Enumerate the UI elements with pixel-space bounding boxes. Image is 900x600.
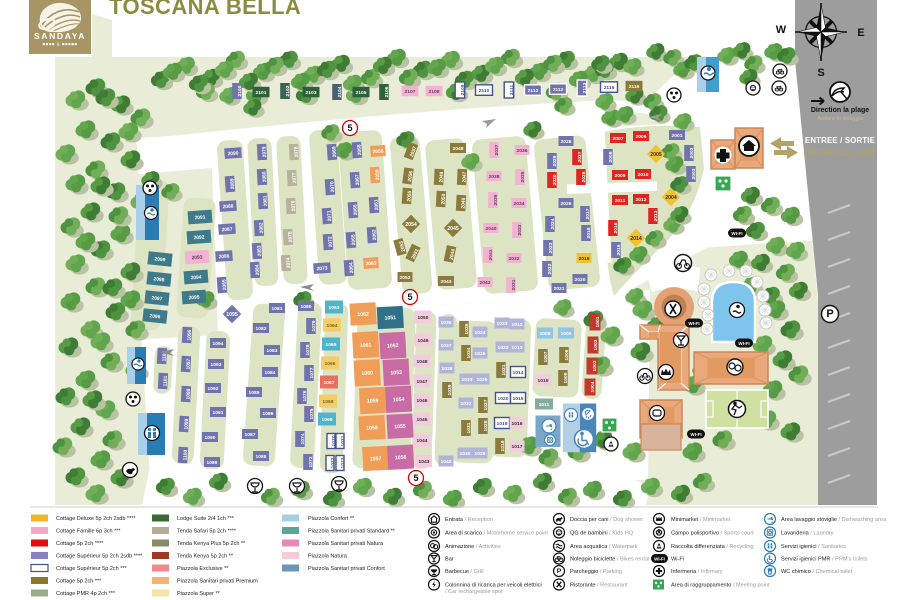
svg-text:2071: 2071 [326,210,333,222]
svg-text:2061: 2061 [373,199,380,211]
svg-text:P: P [826,308,833,320]
svg-text:2102: 2102 [285,85,291,96]
svg-text:Andare in spiaggia: Andare in spiaggia [817,116,864,122]
svg-text:1004: 1004 [590,381,596,392]
svg-text:1011: 1011 [539,402,550,408]
svg-text:Direction la plage: Direction la plage [811,107,869,114]
svg-text:1090: 1090 [205,435,216,441]
svg-text:Cottage Famille 6p 3ch ***: Cottage Famille 6p 3ch *** [56,529,121,535]
svg-text:WI-FI: WI-FI [731,231,742,236]
svg-text:1062: 1062 [357,312,369,319]
svg-text:2096: 2096 [149,313,161,320]
svg-text:Noleggio biciclette / Bikes re: Noleggio biciclette / Bikes rental [570,557,649,563]
svg-text:WI-FI: WI-FI [654,557,665,562]
svg-text:P: P [557,568,562,575]
svg-text:1024: 1024 [475,330,486,336]
svg-text:1017: 1017 [512,444,523,450]
svg-text:Doccia per cani / Dog shower: Doccia per cani / Dog shower [570,517,643,523]
svg-text:Servizi igienici / Sanitaries: Servizi igienici / Sanitaries [781,544,846,550]
svg-text:2108: 2108 [429,89,440,95]
svg-text:ENTRANCE / EXIT: ENTRANCE / EXIT [805,148,875,157]
svg-text:Infermeria / Infirmary: Infermeria / Infirmary [671,569,723,575]
svg-text:/ Car rechargeable spot: / Car rechargeable spot [445,589,503,595]
svg-text:1026: 1026 [477,377,488,383]
svg-text:2039: 2039 [493,194,499,205]
svg-text:1048: 1048 [417,359,428,365]
svg-text:2105: 2105 [356,90,367,96]
svg-text:5: 5 [407,292,412,302]
svg-text:1064: 1064 [327,323,338,329]
svg-text:Lodge Suite 2/4 1ch ***: Lodge Suite 2/4 1ch *** [177,516,235,522]
svg-text:Area lavaggio stoviglie / Dish: Area lavaggio stoviglie / Dishwashing ar… [781,517,887,523]
svg-text:2112: 2112 [553,87,564,93]
svg-text:■■■■ & ■■■■■: ■■■■ & ■■■■■ [42,42,77,47]
svg-text:WI-FI: WI-FI [738,341,749,346]
svg-text:2023: 2023 [548,242,554,253]
svg-text:Ristorante / Restaurant: Ristorante / Restaurant [570,583,628,589]
svg-text:2058: 2058 [372,149,384,156]
svg-text:2079: 2079 [262,146,269,157]
svg-text:2034: 2034 [514,201,525,207]
svg-text:Piazzola Exclusive **: Piazzola Exclusive ** [177,566,229,572]
svg-text:1007: 1007 [543,351,549,362]
svg-text:2019: 2019 [579,256,590,262]
svg-text:2107: 2107 [405,89,416,95]
svg-text:1008: 1008 [540,331,551,337]
svg-text:2052: 2052 [400,275,411,281]
svg-text:1086: 1086 [263,411,274,417]
svg-text:2002: 2002 [689,147,695,158]
svg-text:1018: 1018 [500,440,506,451]
svg-text:2086: 2086 [218,254,230,261]
svg-text:Area di raggruppamento / Meeti: Area di raggruppamento / Meeting point [671,583,770,589]
svg-text:1083: 1083 [267,348,278,354]
svg-text:1033: 1033 [462,377,473,383]
svg-text:1013: 1013 [512,345,523,351]
svg-text:1029: 1029 [475,451,486,457]
svg-text:Piazzola Confort **: Piazzola Confort ** [308,516,355,522]
svg-text:1084: 1084 [265,370,276,376]
svg-text:Cottage Supérieur 5p 2ch 2sdb: Cottage Supérieur 5p 2ch 2sdb **** [56,554,143,560]
svg-text:2007: 2007 [613,136,624,142]
svg-text:2072: 2072 [327,236,334,248]
svg-text:2011: 2011 [615,198,626,204]
svg-text:1053: 1053 [390,370,402,377]
svg-text:1079: 1079 [311,320,317,331]
svg-text:1065: 1065 [326,342,337,348]
svg-text:2004: 2004 [665,195,677,201]
svg-text:1072: 1072 [330,457,336,468]
svg-text:1015: 1015 [513,396,524,402]
svg-text:1099: 1099 [184,418,191,429]
svg-text:2065: 2065 [350,234,357,246]
svg-text:1058: 1058 [366,425,378,432]
svg-text:1088: 1088 [256,454,267,460]
svg-text:2092: 2092 [193,235,205,242]
svg-text:2097: 2097 [151,295,163,302]
svg-text:1067: 1067 [324,380,335,386]
svg-text:2088: 2088 [222,204,234,211]
svg-text:2101: 2101 [256,90,267,96]
svg-text:2083: 2083 [257,245,264,256]
svg-text:Tenda Kenya 5p 2ch **: Tenda Kenya 5p 2ch ** [177,554,234,560]
svg-text:1078: 1078 [305,344,311,355]
svg-text:2085: 2085 [221,279,228,291]
svg-text:1014: 1014 [513,370,524,376]
svg-text:2103: 2103 [306,90,317,96]
svg-text:2095: 2095 [188,295,200,302]
svg-text:1069: 1069 [322,417,333,423]
svg-text:W: W [776,24,787,36]
svg-text:1038: 1038 [442,366,453,372]
svg-text:2112: 2112 [528,88,539,94]
svg-text:Area di scarico / Motorhome se: Area di scarico / Motorhome service poin… [445,531,548,537]
svg-text:WC chimico / Chemical toilet: WC chimico / Chemical toilet [781,569,853,575]
svg-text:1054: 1054 [393,397,405,404]
svg-text:2018: 2018 [586,227,592,238]
svg-text:1005: 1005 [561,331,572,337]
svg-text:2100: 2100 [237,85,243,96]
svg-text:2082: 2082 [259,222,266,233]
svg-text:2028: 2028 [561,139,572,145]
svg-text:1076: 1076 [302,390,308,401]
svg-text:Piazzola Sanitari privati Natu: Piazzola Sanitari privati Natura [308,541,384,547]
svg-text:2078: 2078 [294,146,301,157]
svg-text:1021: 1021 [501,364,507,375]
svg-text:2066: 2066 [352,204,359,216]
svg-text:2064: 2064 [348,262,355,274]
svg-text:Raccolta differenziata / Recyc: Raccolta differenziata / Recycling [671,544,754,550]
svg-text:2014: 2014 [630,236,642,242]
svg-text:1027: 1027 [483,399,489,410]
svg-text:Animazione / Activities: Animazione / Activities [445,544,501,550]
svg-text:2111: 2111 [509,85,515,96]
svg-text:2098: 2098 [153,276,165,283]
svg-text:Tenda Kenya Plus 5p 2ch **: Tenda Kenya Plus 5p 2ch ** [177,541,246,547]
svg-text:2110: 2110 [479,88,490,94]
svg-text:2016: 2016 [613,222,619,233]
svg-text:2008: 2008 [608,151,614,162]
svg-text:Campo polisportivo / Sports co: Campo polisportivo / Sports court [671,531,754,537]
svg-text:1091: 1091 [213,410,224,416]
svg-text:Servizi igienici PMR / PRM's t: Servizi igienici PMR / PRM's toilets [781,557,868,563]
svg-text:Tenda Safari 5p 2ch ****: Tenda Safari 5p 2ch **** [177,529,237,535]
svg-text:1002: 1002 [593,339,599,350]
svg-text:1028: 1028 [483,420,489,431]
svg-text:2073: 2073 [316,266,328,273]
svg-text:2093: 2093 [191,255,203,262]
svg-text:2087: 2087 [221,227,233,234]
svg-text:E: E [857,27,864,39]
svg-text:2020: 2020 [575,277,586,283]
svg-text:Cottage Deluxe 5p 2ch 2sdb ***: Cottage Deluxe 5p 2ch 2sdb **** [56,516,136,522]
svg-text:1093: 1093 [211,362,222,368]
svg-text:2047: 2047 [462,171,469,182]
svg-text:2077: 2077 [292,172,299,183]
svg-text:1044: 1044 [417,438,428,444]
svg-text:1031: 1031 [466,422,472,433]
svg-text:1087: 1087 [245,432,256,438]
svg-text:1035: 1035 [464,323,470,334]
svg-text:2049: 2049 [439,171,446,182]
svg-text:1071: 1071 [340,435,346,446]
svg-text:2059: 2059 [374,169,381,181]
svg-text:1060: 1060 [361,370,373,377]
svg-text:2050: 2050 [441,193,448,204]
svg-text:TOSCANA BELLA: TOSCANA BELLA [109,0,301,19]
svg-text:1066: 1066 [325,361,336,367]
svg-text:Piazzola Natura: Piazzola Natura [308,554,348,560]
svg-text:1068: 1068 [323,399,334,405]
svg-text:Lavanderia / Laundry: Lavanderia / Laundry [781,531,834,537]
svg-text:2024: 2024 [550,218,556,229]
svg-text:1063: 1063 [329,305,340,311]
svg-text:2037: 2037 [494,144,500,155]
svg-text:ENTREE / SORTIE: ENTREE / SORTIE [805,136,875,145]
svg-text:Cottage 5p 2ch ****: Cottage 5p 2ch **** [56,541,104,547]
svg-text:1023: 1023 [497,321,508,327]
svg-text:1050: 1050 [418,315,429,321]
svg-text:1022: 1022 [498,345,509,351]
svg-text:2099: 2099 [154,256,166,263]
svg-text:2038: 2038 [489,174,500,180]
svg-text:2067: 2067 [354,174,361,186]
svg-text:2005: 2005 [650,152,662,158]
svg-text:1037: 1037 [441,343,452,349]
svg-text:2084: 2084 [255,264,262,275]
svg-text:2070: 2070 [329,181,336,193]
svg-text:2068: 2068 [356,144,363,156]
svg-text:1030: 1030 [460,451,471,457]
svg-text:1010: 1010 [538,378,549,384]
svg-text:2010: 2010 [638,172,649,178]
svg-text:1096: 1096 [187,329,194,340]
svg-text:1057: 1057 [370,456,382,463]
svg-text:1025: 1025 [475,351,486,357]
svg-text:2090: 2090 [227,151,239,158]
svg-text:Bar: Bar [445,557,454,563]
svg-text:2081: 2081 [263,195,270,206]
svg-text:2075: 2075 [288,231,295,242]
svg-text:2104: 2104 [337,86,343,97]
svg-text:2006: 2006 [636,134,647,140]
svg-text:2074: 2074 [286,257,293,268]
svg-text:Area acquatica / Waterpark: Area acquatica / Waterpark [570,544,638,550]
svg-text:2091: 2091 [194,215,206,222]
svg-text:1073: 1073 [308,456,314,467]
svg-text:2069: 2069 [331,146,338,158]
svg-text:1077: 1077 [309,367,315,378]
svg-text:Cottage 5p 2ch ***: Cottage 5p 2ch *** [56,579,102,585]
svg-text:1039: 1039 [447,384,453,395]
svg-text:1080: 1080 [301,304,312,310]
svg-text:Cottage PMR 4p 2ch ***: Cottage PMR 4p 2ch *** [56,591,116,597]
svg-text:2012: 2012 [636,197,647,203]
svg-text:1097: 1097 [186,358,193,369]
svg-text:2116: 2116 [629,84,640,90]
svg-text:2042: 2042 [480,280,491,286]
svg-text:5: 5 [413,473,418,483]
svg-text:Piazzola Sanitari privati Conf: Piazzola Sanitari privati Confort [308,566,385,572]
svg-text:2030: 2030 [552,174,558,185]
svg-text:2035: 2035 [520,171,526,182]
svg-text:1016: 1016 [512,421,523,427]
svg-text:2055: 2055 [406,190,413,202]
svg-text:2001: 2001 [672,133,683,139]
svg-text:2076: 2076 [291,200,298,211]
svg-text:2026: 2026 [581,171,587,182]
svg-text:2017: 2017 [585,208,591,219]
svg-text:2021: 2021 [554,286,565,292]
svg-text:1042: 1042 [441,459,452,465]
svg-text:WI-FI: WI-FI [690,432,701,437]
svg-text:1082: 1082 [256,326,267,332]
svg-text:2094: 2094 [190,275,202,282]
svg-text:Parcheggio / Parking: Parcheggio / Parking [570,569,622,575]
svg-text:Cottage Supérieur 5p 2ch ***: Cottage Supérieur 5p 2ch *** [56,566,127,572]
svg-text:1075: 1075 [309,408,315,419]
svg-text:1001: 1001 [595,316,601,327]
svg-text:1094: 1094 [213,341,224,347]
svg-text:2046: 2046 [461,197,468,208]
svg-text:1019: 1019 [497,421,508,427]
svg-text:5: 5 [347,123,352,133]
svg-text:2089: 2089 [229,178,236,190]
svg-text:S: S [817,67,824,79]
svg-text:1012: 1012 [512,322,523,328]
svg-text:QG de bambini / Kids HQ: QG de bambini / Kids HQ [570,531,634,537]
svg-text:1059: 1059 [367,398,379,405]
svg-text:2043: 2043 [441,279,452,285]
svg-text:1085: 1085 [249,390,260,396]
svg-text:Wi-Fi: Wi-Fi [671,557,684,563]
svg-text:1047: 1047 [417,379,428,385]
svg-text:2003: 2003 [691,168,697,179]
svg-text:2009: 2009 [615,173,626,179]
svg-text:2013: 2013 [653,210,659,221]
svg-text:Minimarket / Minimarket: Minimarket / Minimarket [671,517,731,523]
svg-text:2022: 2022 [547,263,553,274]
svg-text:2045: 2045 [447,226,459,232]
svg-text:2041: 2041 [488,249,494,260]
svg-text:1043: 1043 [419,459,430,465]
svg-text:1006: 1006 [564,349,570,360]
svg-text:1081: 1081 [272,306,283,312]
svg-text:2109: 2109 [460,84,466,95]
svg-text:2015: 2015 [616,244,622,255]
svg-text:2029: 2029 [552,155,558,166]
svg-text:1045: 1045 [417,417,428,423]
svg-text:1051: 1051 [384,315,396,322]
svg-text:1020: 1020 [498,396,509,402]
svg-text:2113: 2113 [582,82,588,93]
svg-text:Barbecue / Grill: Barbecue / Grill [445,569,484,575]
svg-text:2063: 2063 [365,261,377,268]
svg-text:WI-FI: WI-FI [688,321,699,326]
svg-text:1095: 1095 [226,312,238,318]
svg-text:1034: 1034 [466,347,472,358]
svg-text:2106: 2106 [384,86,390,97]
svg-text:2048: 2048 [453,146,464,152]
svg-text:Piazzola Super **: Piazzola Super ** [177,591,221,597]
svg-text:1009: 1009 [563,372,569,383]
svg-text:1092: 1092 [208,386,219,392]
svg-text:1061: 1061 [360,342,372,349]
svg-text:Entrata / Reception: Entrata / Reception [445,517,493,523]
svg-text:Colonnina di ricarica per veic: Colonnina di ricarica per veicoli elettr… [445,583,542,589]
svg-text:1089: 1089 [207,460,218,466]
svg-text:2080: 2080 [262,171,269,182]
svg-text:1055: 1055 [394,424,406,431]
svg-text:2054: 2054 [405,222,417,228]
svg-text:1036: 1036 [441,320,452,326]
svg-text:2031: 2031 [511,279,517,290]
svg-text:Piazzola Sanitari privati Stan: Piazzola Sanitari privati Standard ** [308,529,396,535]
svg-text:2025: 2025 [561,201,572,207]
svg-text:1098: 1098 [186,388,193,399]
svg-text:Piazzola Sanitari privati Prem: Piazzola Sanitari privati Premium [177,579,258,585]
svg-text:1049: 1049 [418,338,429,344]
svg-text:1003: 1003 [592,360,598,371]
svg-text:1073: 1073 [340,457,346,468]
svg-text:2027: 2027 [577,151,583,162]
svg-text:2036: 2036 [517,148,528,154]
svg-text:1046: 1046 [417,398,428,404]
svg-text:1100: 1100 [183,449,190,460]
svg-text:1032: 1032 [461,401,472,407]
svg-text:SANDAYA: SANDAYA [34,31,86,41]
svg-text:1056: 1056 [395,455,407,462]
svg-text:2062: 2062 [371,229,378,241]
svg-text:1052: 1052 [387,343,399,350]
svg-text:2033: 2033 [517,224,523,235]
svg-text:1101: 1101 [163,375,170,386]
svg-text:2040: 2040 [486,226,497,232]
svg-text:2115: 2115 [604,85,615,91]
svg-text:2032: 2032 [509,256,520,262]
svg-text:1074: 1074 [300,433,306,444]
